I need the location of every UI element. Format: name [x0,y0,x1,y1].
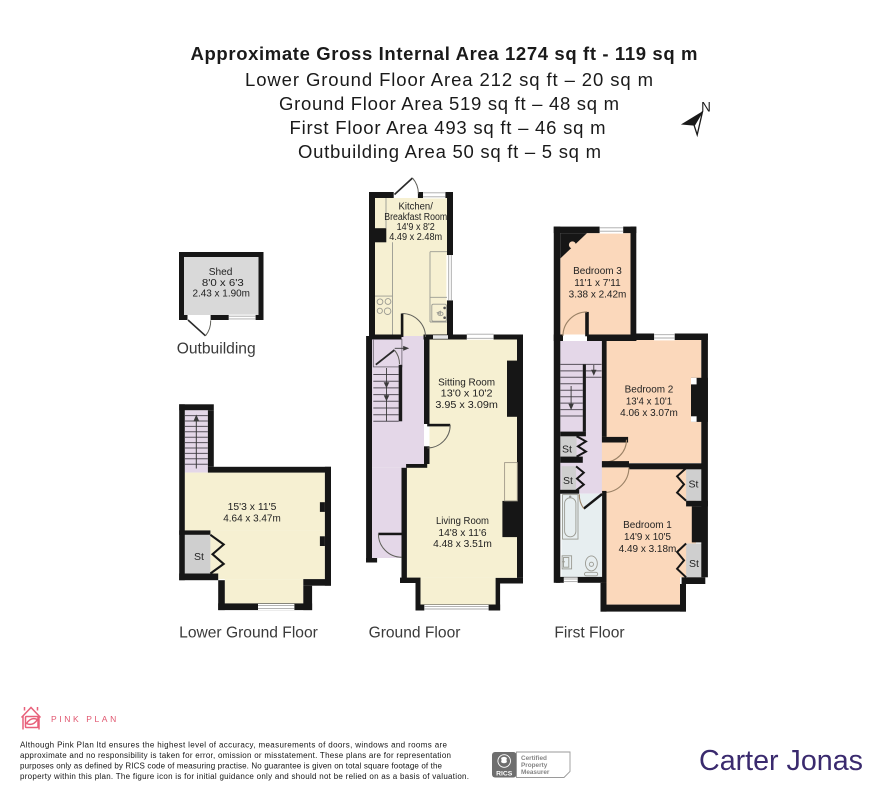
svg-text:2.43 x 1.90m: 2.43 x 1.90m [192,289,250,300]
svg-text:Ground Floor: Ground Floor [369,625,461,642]
svg-text:St: St [689,479,699,491]
svg-text:approximate and no responsibil: approximate and no responsibility is tak… [20,751,451,760]
svg-text:First Floor Area 493 sq ft – 4: First Floor Area 493 sq ft – 46 sq m [290,117,606,138]
svg-text:Carter Jonas: Carter Jonas [699,745,863,777]
svg-text:Certified: Certified [521,755,547,762]
svg-text:Ground Floor Area 519 sq ft –: Ground Floor Area 519 sq ft – 48 sq m [279,93,619,114]
svg-text:Property: Property [521,762,548,769]
svg-text:13'4 x 10'1: 13'4 x 10'1 [626,397,673,408]
svg-text:4.49 x 2.48m: 4.49 x 2.48m [389,232,442,243]
svg-text:Lower Ground Floor Area 212 sq: Lower Ground Floor Area 212 sq ft – 20 s… [245,69,653,90]
svg-text:Lower Ground Floor: Lower Ground Floor [179,625,318,642]
svg-text:14'9 x 10'5: 14'9 x 10'5 [624,532,671,543]
svg-text:Living Room: Living Room [436,516,489,527]
svg-text:15'3 x 11'5: 15'3 x 11'5 [228,502,277,513]
svg-text:St: St [562,444,572,456]
svg-text:4.64 x 3.47m: 4.64 x 3.47m [223,514,281,525]
svg-text:Bedroom 2: Bedroom 2 [625,385,674,396]
svg-text:property within this plan. The: property within this plan. The figure ic… [20,772,469,781]
svg-text:St: St [194,551,204,563]
svg-text:RICS: RICS [496,771,513,778]
svg-text:Measurer: Measurer [521,769,550,776]
svg-text:3.95 x 3.09m: 3.95 x 3.09m [435,400,498,411]
svg-text:Outbuilding Area 50 sq ft – 5: Outbuilding Area 50 sq ft – 5 sq m [298,141,601,162]
svg-text:Approximate Gross Internal Are: Approximate Gross Internal Area 1274 sq … [191,43,698,64]
svg-text:13'0 x 10'2: 13'0 x 10'2 [441,389,493,400]
svg-text:Outbuilding: Outbuilding [177,341,256,358]
svg-text:3.38 x 2.42m: 3.38 x 2.42m [569,290,627,301]
svg-text:Sitting Room: Sitting Room [438,377,495,388]
svg-text:purposes only as defined by RI: purposes only as defined by RICS code of… [20,762,443,771]
svg-text:4.06 x 3.07m: 4.06 x 3.07m [620,408,678,419]
svg-text:Bedroom 3: Bedroom 3 [573,266,622,277]
svg-text:St: St [689,558,699,570]
svg-text:Bedroom 1: Bedroom 1 [623,520,672,531]
svg-text:First Floor: First Floor [554,625,624,642]
svg-text:Shed: Shed [209,267,233,278]
svg-text:14'8 x 11'6: 14'8 x 11'6 [438,528,487,539]
svg-text:8'0 x 6'3: 8'0 x 6'3 [202,278,244,289]
svg-text:Kitchen/: Kitchen/ [399,202,434,213]
svg-text:11'1 x 7'11: 11'1 x 7'11 [574,278,621,289]
svg-text:4.49 x 3.18m: 4.49 x 3.18m [619,544,677,555]
svg-text:St: St [563,475,573,487]
svg-text:Although Pink Plan ltd ensures: Although Pink Plan ltd ensures the highe… [20,741,448,750]
svg-text:4.48 x 3.51m: 4.48 x 3.51m [433,539,492,550]
svg-text:PINK PLAN: PINK PLAN [51,714,119,724]
